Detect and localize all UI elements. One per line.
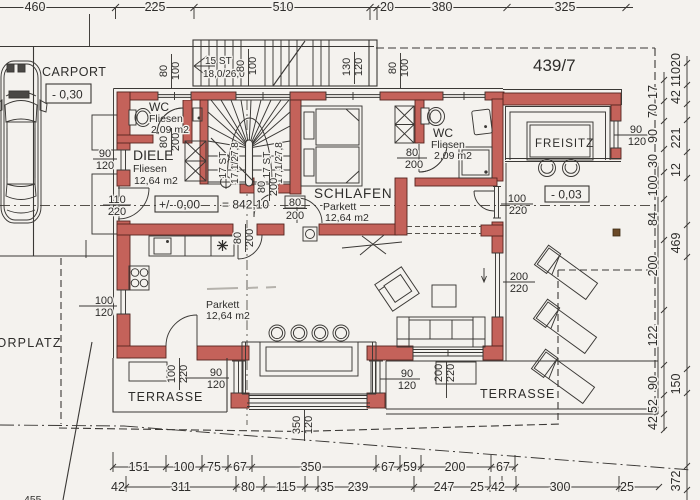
svg-text:17,1/27,8: 17,1/27,8 <box>230 142 241 184</box>
svg-text:120: 120 <box>398 380 416 392</box>
svg-text:75: 75 <box>207 460 221 474</box>
svg-text:TERRASSE: TERRASSE <box>480 387 555 401</box>
svg-text:42: 42 <box>669 90 683 104</box>
svg-text:380: 380 <box>432 0 453 14</box>
svg-text:300: 300 <box>550 480 571 494</box>
svg-text:510: 510 <box>273 0 294 14</box>
svg-text:Fliesen: Fliesen <box>133 163 167 175</box>
svg-text:17,1/27,8: 17,1/27,8 <box>274 142 285 184</box>
svg-text:42: 42 <box>491 480 505 494</box>
svg-text:80: 80 <box>289 197 301 209</box>
svg-text:100: 100 <box>646 176 660 197</box>
svg-text:67: 67 <box>496 460 510 474</box>
svg-text:239: 239 <box>348 480 369 494</box>
svg-text:455: 455 <box>24 494 42 500</box>
svg-text:90: 90 <box>401 368 413 380</box>
svg-text:200: 200 <box>405 159 423 171</box>
svg-text:130: 130 <box>341 58 353 76</box>
svg-text:115: 115 <box>276 480 296 494</box>
svg-text:80: 80 <box>232 232 244 244</box>
svg-text:90: 90 <box>210 367 222 379</box>
svg-text:= 842,10: = 842,10 <box>222 198 269 212</box>
svg-text:80: 80 <box>158 136 170 148</box>
svg-text:460: 460 <box>25 0 46 14</box>
svg-text:80: 80 <box>387 62 399 74</box>
svg-text:100: 100 <box>174 460 195 474</box>
svg-text:12,64 m2: 12,64 m2 <box>134 175 178 187</box>
svg-text:80: 80 <box>256 181 268 193</box>
svg-text:- 0,30: - 0,30 <box>52 88 83 102</box>
svg-text:372: 372 <box>669 471 683 492</box>
svg-text:80: 80 <box>406 147 418 159</box>
svg-text:120: 120 <box>95 307 113 319</box>
svg-text:200: 200 <box>286 210 304 222</box>
svg-text:59: 59 <box>403 460 417 474</box>
svg-text:350: 350 <box>291 416 303 434</box>
svg-text:100: 100 <box>95 295 113 307</box>
svg-text:12,64 m2: 12,64 m2 <box>325 212 369 224</box>
svg-text:12,64 m2: 12,64 m2 <box>206 310 250 322</box>
svg-text:84: 84 <box>646 212 660 226</box>
svg-text:80: 80 <box>158 65 170 77</box>
svg-text:VORPLATZ: VORPLATZ <box>0 336 62 350</box>
svg-text:42: 42 <box>111 480 125 494</box>
svg-text:151: 151 <box>129 460 150 474</box>
svg-text:WC: WC <box>433 126 453 140</box>
svg-text:200: 200 <box>445 460 466 474</box>
svg-text:220: 220 <box>108 206 126 218</box>
svg-text:17: 17 <box>646 85 660 99</box>
svg-text:122: 122 <box>646 326 660 347</box>
svg-text:20: 20 <box>669 53 683 67</box>
svg-text:17 ST: 17 ST <box>218 152 229 179</box>
svg-text:90: 90 <box>630 124 642 136</box>
svg-text:67: 67 <box>233 460 247 474</box>
svg-text:17 ST: 17 ST <box>262 152 273 179</box>
svg-text:90: 90 <box>99 148 111 160</box>
svg-text:100: 100 <box>508 193 526 205</box>
svg-text:25: 25 <box>620 480 634 494</box>
svg-text:220: 220 <box>510 283 528 295</box>
svg-text:15 ST: 15 ST <box>205 56 232 67</box>
svg-text:120: 120 <box>96 160 114 172</box>
svg-text:52: 52 <box>646 399 660 413</box>
svg-text:30: 30 <box>646 154 660 168</box>
svg-text:325: 325 <box>555 0 576 14</box>
svg-text:12: 12 <box>669 163 683 177</box>
svg-text:35: 35 <box>320 480 334 494</box>
svg-text:110: 110 <box>108 194 126 206</box>
svg-text:90: 90 <box>646 376 660 390</box>
svg-text:311: 311 <box>171 480 191 494</box>
svg-text:469: 469 <box>669 233 683 254</box>
svg-text:DIELE: DIELE <box>133 147 173 163</box>
svg-text:220: 220 <box>509 205 527 217</box>
svg-text:100: 100 <box>166 365 178 383</box>
svg-text:2,09 m2: 2,09 m2 <box>434 150 472 162</box>
svg-text:150: 150 <box>669 374 683 395</box>
svg-text:SCHLAFEN: SCHLAFEN <box>314 186 392 201</box>
svg-text:25: 25 <box>470 480 484 494</box>
svg-text:67: 67 <box>381 460 395 474</box>
svg-text:70: 70 <box>646 104 660 118</box>
svg-text:225: 225 <box>145 0 166 14</box>
svg-text:200: 200 <box>433 364 445 382</box>
svg-text:120: 120 <box>628 136 646 148</box>
svg-text:CARPORT: CARPORT <box>42 65 106 79</box>
svg-text:350: 350 <box>301 460 322 474</box>
svg-text:80: 80 <box>235 60 247 72</box>
svg-text:439/7: 439/7 <box>533 56 576 75</box>
svg-text:TERRASSE: TERRASSE <box>128 390 203 404</box>
svg-text:- 0,03: - 0,03 <box>551 188 582 202</box>
svg-text:+/- 0,00: +/- 0,00 <box>159 198 200 212</box>
svg-text:247: 247 <box>434 480 455 494</box>
svg-text:221: 221 <box>669 128 683 149</box>
svg-text:110: 110 <box>669 67 683 87</box>
svg-text:WC: WC <box>149 100 169 114</box>
svg-text:200: 200 <box>510 271 528 283</box>
svg-text:90: 90 <box>646 129 660 143</box>
svg-text:200: 200 <box>646 256 660 277</box>
svg-text:120: 120 <box>207 379 225 391</box>
svg-text:42: 42 <box>646 416 660 430</box>
svg-text:80: 80 <box>241 480 255 494</box>
svg-text:FREISITZ: FREISITZ <box>535 138 594 150</box>
svg-text:20: 20 <box>380 0 394 14</box>
